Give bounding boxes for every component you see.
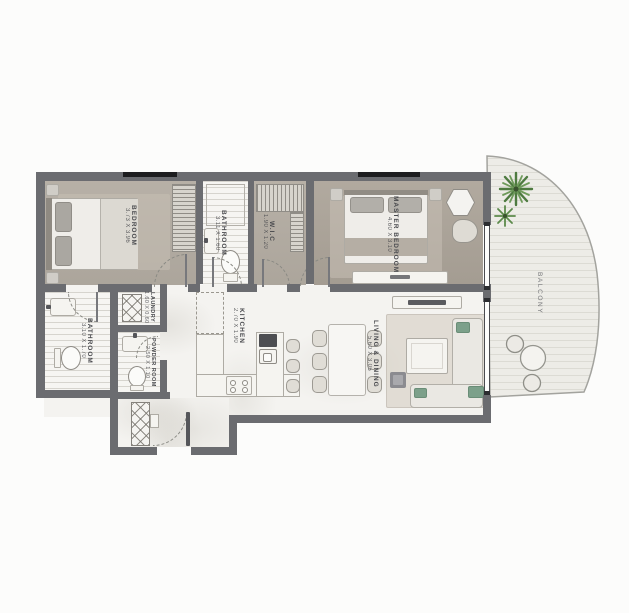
washer-dryer [122, 294, 142, 322]
balcony-door-glass [484, 302, 490, 395]
wic-closet [256, 184, 304, 212]
master-bedroom-label: MASTER BEDROOM 4.60 X 3.10 [386, 196, 399, 273]
wall-segment [36, 172, 45, 398]
bar-stool [286, 359, 300, 373]
balcony-label: BALCONY [536, 272, 543, 314]
faucet-icon [204, 238, 208, 243]
dining-chair [312, 353, 327, 370]
toilet-tank [54, 348, 61, 368]
wall-segment [248, 181, 254, 284]
kitchen-upper-cabinet [196, 292, 224, 334]
master-nightstand [330, 188, 343, 201]
console-handle [390, 275, 410, 279]
wall-segment [110, 394, 118, 455]
bar-stool [286, 339, 300, 353]
coffee-table [406, 338, 448, 374]
kitchen-label: KITCHEN 2.70 X 1.90 [232, 308, 245, 344]
balcony-door-glass [484, 225, 490, 290]
bar-stool [286, 379, 300, 393]
faucet-icon [133, 333, 137, 338]
master-chair [452, 219, 478, 243]
dining-chair [312, 376, 327, 393]
master-headboard [344, 190, 428, 195]
wall-segment [110, 325, 167, 332]
wall-segment [483, 172, 491, 225]
dining-table [328, 324, 366, 396]
master-door-leaf [328, 257, 330, 287]
mullion [484, 222, 490, 226]
dining-chair [312, 330, 327, 347]
bathroom-top-label: BATHROOM 3.11 X 1.60 [214, 210, 227, 256]
side-table [390, 372, 406, 388]
entry-door-leaf [186, 412, 190, 446]
living-dining-label: LIVING & DINING 5.60 X 3.05 [366, 320, 379, 388]
nightstand [46, 184, 59, 196]
wall-segment [227, 284, 257, 292]
wic-closet-side [290, 212, 304, 252]
toilet-tank [130, 385, 144, 391]
bed-headboard [46, 198, 52, 270]
wall-segment [229, 415, 491, 423]
wall-segment [188, 284, 200, 292]
mullion [484, 286, 490, 290]
cooktop-icon [259, 334, 277, 347]
mullion [484, 298, 490, 302]
powder-room-label: POWDER ROOM 2.50 X 1.10 [144, 338, 156, 387]
laundry-label: LAUNDRY 1.60 X 0.60 [143, 291, 155, 324]
wall-segment [196, 181, 203, 284]
master-window [358, 172, 420, 177]
bed-pillow [55, 236, 72, 266]
wall-segment [36, 172, 491, 181]
balcony-table [521, 346, 546, 371]
bedroom-window [123, 172, 177, 177]
nightstand [46, 272, 59, 284]
bedroom-label: BEDROOM 3.73 X 3.96 [124, 205, 137, 246]
wall-segment [330, 284, 491, 292]
sofa-cushion-green [414, 388, 427, 398]
bedroom-door-leaf [185, 254, 187, 287]
master-pillow [350, 197, 384, 213]
mullion [484, 391, 490, 395]
bathroom-main-toilet [61, 346, 81, 370]
bathroom-main-label: BATHROOM 3.10 X 1.70 [80, 318, 93, 364]
wall-segment [110, 292, 118, 394]
balcony-chair [524, 375, 541, 392]
wall-segment [306, 181, 314, 284]
utility-shaft [131, 402, 150, 446]
floor-plan: BEDROOM 3.73 X 3.96 BATHROOM 3.11 X 1.60… [0, 0, 629, 613]
wall-segment [229, 415, 237, 455]
kitchen-sink [259, 349, 277, 364]
sofa-cushion-green [456, 322, 470, 333]
bathroom-main-door-leaf [96, 292, 98, 322]
wic-door-leaf [262, 259, 264, 287]
bedroom-wardrobe [172, 184, 196, 252]
bed-pillow [55, 202, 72, 232]
wall-segment [160, 360, 167, 394]
master-nightstand [429, 188, 442, 201]
bathroom-top-door-leaf [212, 257, 214, 287]
stove [226, 376, 252, 395]
wall-segment [36, 390, 118, 398]
faucet-icon [46, 305, 51, 309]
wall-segment [287, 284, 300, 292]
wic-label: W.I.C 1.90 X 1.20 [262, 214, 275, 249]
sofa-cushion-green [468, 386, 484, 398]
tv-icon [408, 300, 446, 305]
wall-segment [483, 395, 491, 423]
balcony-chair [507, 336, 524, 353]
